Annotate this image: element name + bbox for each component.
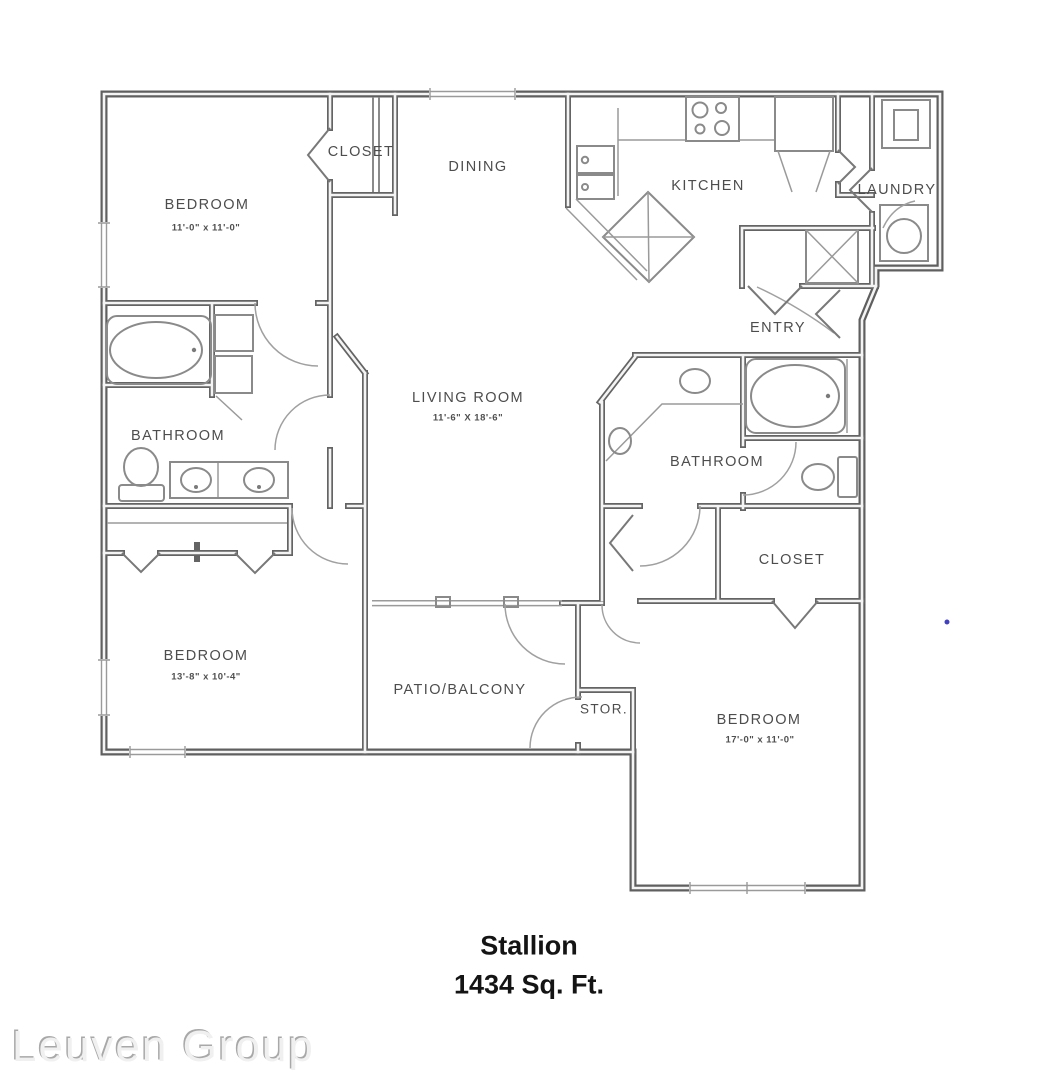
stray-mark — [945, 620, 950, 625]
room-label-closet-2: CLOSET — [759, 552, 825, 568]
room-dims-bedroom-2: 13'-8" x 10'-4" — [171, 672, 241, 683]
water-heater-closet-icon — [806, 230, 858, 283]
floor-plan-drawing — [0, 0, 1058, 1080]
kitchen-island-icon — [566, 192, 694, 282]
room-label-bedroom-3: BEDROOM — [717, 712, 802, 728]
double-vanity-icon — [170, 462, 288, 498]
room-dims-living-room: 11'-6" X 18'-6" — [433, 413, 503, 424]
washer-icon — [882, 100, 930, 148]
walls — [104, 94, 940, 888]
room-label-bedroom-1: BEDROOM — [165, 197, 250, 213]
refrigerator-icon — [775, 97, 833, 192]
plan-area: 1434 Sq. Ft. — [454, 970, 604, 1001]
room-label-bathroom-1: BATHROOM — [131, 428, 225, 444]
room-label-storage: STOR. — [580, 702, 628, 717]
room-label-bathroom-2: BATHROOM — [670, 454, 764, 470]
linen-cabinet-icon — [215, 315, 253, 420]
room-label-bedroom-2: BEDROOM — [164, 648, 249, 664]
room-label-laundry: LAUNDRY — [858, 182, 937, 198]
toilet-icon — [119, 448, 164, 501]
room-dims-bedroom-1: 11'-0" x 11'-0" — [172, 223, 241, 234]
room-dims-bedroom-3: 17'-0" x 11'-0" — [725, 735, 794, 746]
room-label-entry: ENTRY — [750, 320, 806, 336]
floor-plan-page: BEDROOM 11'-0" x 11'-0" CLOSET DINING KI… — [0, 0, 1058, 1080]
watermark: Leuven Group — [12, 1022, 315, 1072]
toilet2-icon — [802, 457, 857, 497]
bathtub-icon — [107, 316, 211, 384]
plan-title: Stallion — [480, 931, 578, 962]
sliding-door-icon — [372, 597, 562, 607]
room-label-closet-1: CLOSET — [328, 144, 394, 160]
range-icon — [686, 97, 739, 141]
room-label-dining: DINING — [448, 159, 507, 175]
room-label-kitchen: KITCHEN — [671, 178, 744, 194]
dryer-icon — [880, 205, 928, 261]
closet-shelving-icon — [107, 97, 379, 523]
room-label-living-room: LIVING ROOM — [412, 390, 524, 406]
vanity2-icon — [606, 369, 743, 461]
bathtub2-icon — [746, 359, 847, 433]
room-label-patio-balcony: PATIO/BALCONY — [394, 682, 527, 698]
